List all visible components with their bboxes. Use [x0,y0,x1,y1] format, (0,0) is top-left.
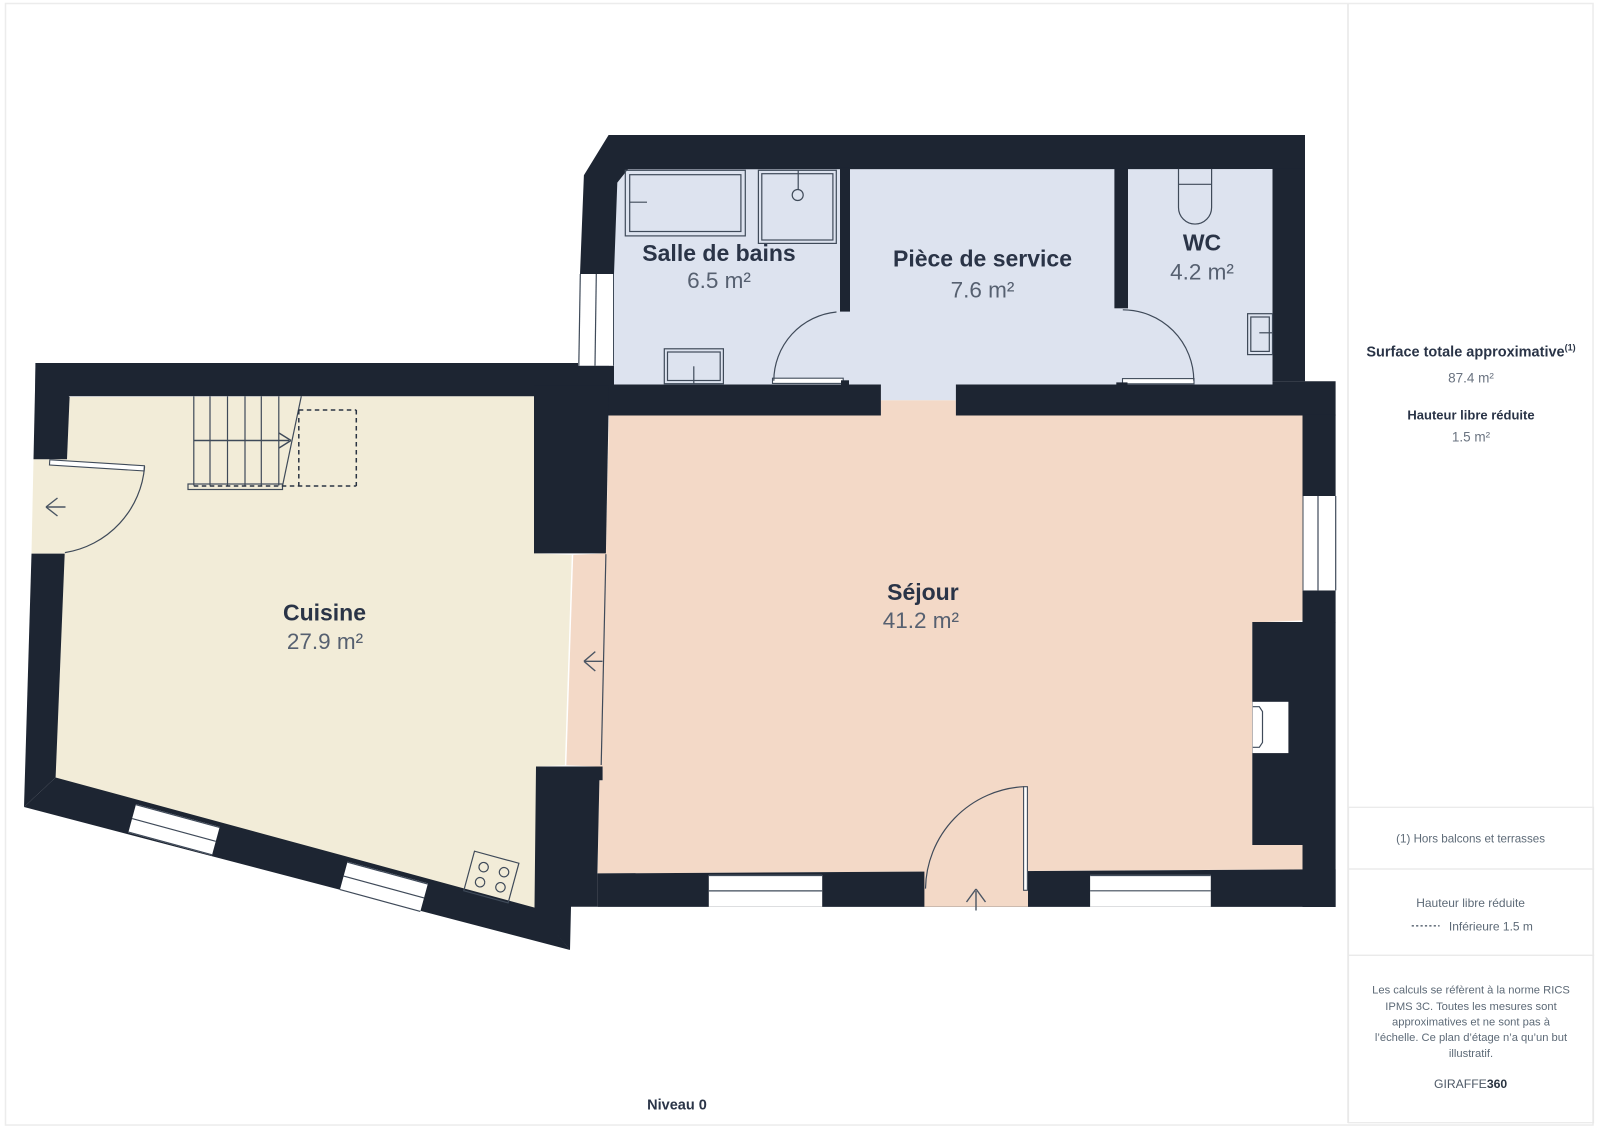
svg-text:1.5 m²: 1.5 m² [1452,430,1491,445]
svg-text:6.5 m²: 6.5 m² [687,268,751,293]
svg-text:(1) Hors balcons et terrasses: (1) Hors balcons et terrasses [1396,832,1545,845]
svg-text:GIRAFFE360: GIRAFFE360 [1434,1077,1507,1091]
svg-text:IPMS 3C. Toutes les mesures so: IPMS 3C. Toutes les mesures sont [1385,1001,1557,1013]
svg-text:approximatives et ne sont pas: approximatives et ne sont pas à [1392,1016,1551,1028]
svg-text:Cuisine: Cuisine [283,600,366,626]
svg-text:l’échelle. Ce plan d’étage n’a: l’échelle. Ce plan d’étage n’a qu’un but [1375,1032,1568,1044]
svg-text:27.9 m²: 27.9 m² [287,629,364,654]
svg-text:illustratif.: illustratif. [1449,1048,1493,1060]
svg-text:Hauteur libre réduite: Hauteur libre réduite [1416,896,1525,910]
svg-text:Surface totale approximative(1: Surface totale approximative(1) [1366,343,1575,361]
svg-text:Niveau 0: Niveau 0 [647,1098,707,1114]
svg-text:Hauteur libre réduite: Hauteur libre réduite [1407,408,1534,423]
svg-text:41.2 m²: 41.2 m² [883,608,960,633]
svg-text:4.2 m²: 4.2 m² [1170,260,1234,285]
svg-text:Salle de bains: Salle de bains [642,240,795,266]
svg-text:Inférieure 1.5 m: Inférieure 1.5 m [1449,919,1533,933]
svg-text:Les calculs se réfèrent à la n: Les calculs se réfèrent à la norme RICS [1372,984,1570,996]
svg-text:WC: WC [1183,230,1221,256]
svg-text:87.4 m²: 87.4 m² [1448,371,1494,386]
svg-text:7.6 m²: 7.6 m² [951,278,1015,303]
svg-text:Séjour: Séjour [887,579,959,605]
svg-text:Pièce de service: Pièce de service [893,246,1072,272]
